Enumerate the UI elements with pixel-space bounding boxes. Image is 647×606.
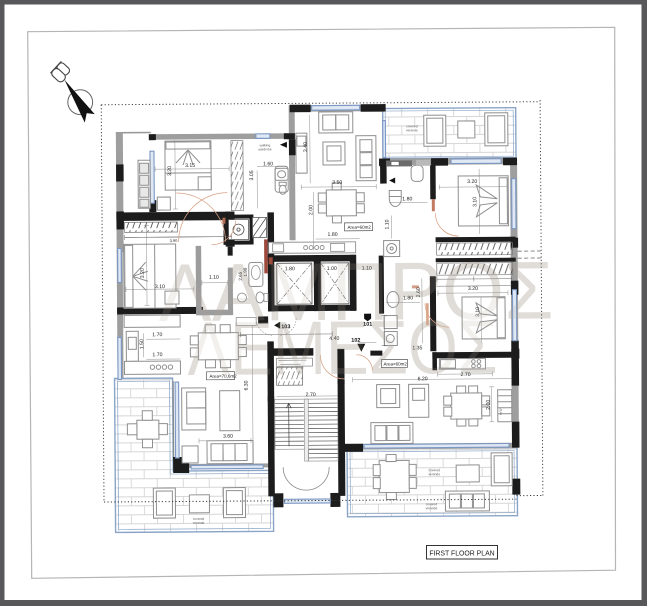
svg-text:1.50: 1.50 xyxy=(139,339,145,349)
svg-text:2.70: 2.70 xyxy=(306,392,316,398)
svg-text:3.15: 3.15 xyxy=(185,163,195,169)
svg-text:veranda: veranda xyxy=(406,128,418,132)
svg-text:3.20: 3.20 xyxy=(167,166,173,176)
svg-text:FIRST FLOOR PLAN: FIRST FLOOR PLAN xyxy=(429,551,494,558)
svg-text:th W: th W xyxy=(499,408,503,415)
svg-text:2.00: 2.00 xyxy=(308,205,314,215)
svg-text:3.60: 3.60 xyxy=(223,434,233,440)
svg-text:ΛΕΜΕΣΟΣ: ΛΕΜΕΣΟΣ xyxy=(187,305,498,392)
svg-text:veranda: veranda xyxy=(193,521,205,525)
svg-text:1.80: 1.80 xyxy=(402,196,412,202)
svg-text:3.50: 3.50 xyxy=(332,180,342,186)
svg-text:3.40: 3.40 xyxy=(303,142,309,152)
svg-text:wardrobe: wardrobe xyxy=(258,147,272,151)
svg-text:3.20: 3.20 xyxy=(467,179,477,185)
svg-text:Area=60m2: Area=60m2 xyxy=(347,225,371,230)
svg-text:1.60: 1.60 xyxy=(263,161,273,167)
svg-text:veranda: veranda xyxy=(426,506,438,510)
svg-text:veranda: veranda xyxy=(428,472,440,476)
svg-text:3.05: 3.05 xyxy=(249,170,255,180)
svg-text:1.70: 1.70 xyxy=(152,352,162,358)
svg-text:1.10: 1.10 xyxy=(384,219,390,229)
svg-text:3.20: 3.20 xyxy=(140,268,146,278)
svg-text:3.10: 3.10 xyxy=(472,197,478,207)
svg-text:1.80: 1.80 xyxy=(328,232,338,238)
svg-text:2.00: 2.00 xyxy=(486,400,492,410)
svg-text:3.90: 3.90 xyxy=(170,238,179,243)
